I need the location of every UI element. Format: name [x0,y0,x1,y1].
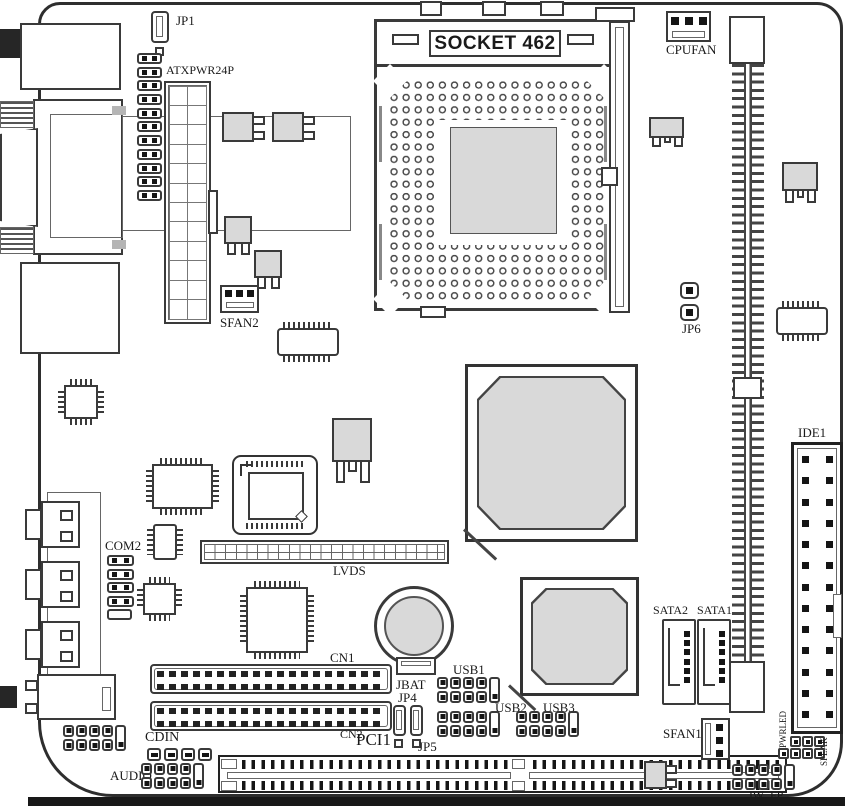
jwfp-label: JW_FP [748,789,783,802]
sfan2-label: SFAN2 [220,316,259,330]
jwfp-header [732,764,795,790]
transistor-leg [664,136,671,143]
com2-label: COM2 [105,539,141,553]
flash-chip [776,307,828,335]
transistor-leg [336,460,345,483]
chip-pins [70,379,92,385]
board-bottom-edge [28,797,845,806]
port-plug-tab [25,569,42,600]
socket-top-tab [420,1,442,16]
jp5-slot [413,710,419,730]
southbridge-die [533,590,626,683]
port-pin [60,570,73,581]
vreg-transistor [254,250,282,278]
small-qfp-chip [64,385,98,419]
socket-top-tab [540,1,564,16]
small-soic-chip [153,524,177,560]
io-port-box [20,262,120,354]
spare-header [63,725,126,751]
dimm-teeth-right [752,64,764,661]
lvds-connector [200,540,449,564]
jp6-pin [686,309,693,316]
chip-pins [176,589,182,609]
cpufan-pin [671,17,679,25]
chip-pins [283,322,333,328]
transistor-leg [241,242,250,255]
port-pin [60,531,73,542]
transistor-leg [360,460,370,483]
mounting-block [0,686,17,708]
vga-screw-post [0,101,34,128]
atxpwr24p-label: ATXPWR24P [166,64,234,77]
chip-pins [149,577,170,583]
sata2-key [668,628,680,686]
sata2-label: SATA2 [653,604,688,617]
port-pin [60,510,73,521]
sata1-label: SATA1 [697,604,732,617]
chip-pins [308,595,314,645]
jp4-pad [394,739,403,748]
transistor-leg [797,189,804,198]
vreg-transistor [222,112,254,142]
ide1-label: IDE1 [798,426,826,440]
port-pin [60,591,73,602]
usb2-header [437,711,500,737]
edge-connector-key [102,687,111,711]
transistor-leg [674,136,683,147]
cpufan-pin [685,17,693,25]
transistor-leg [302,131,315,140]
chip-pins [254,653,300,659]
pci-key [512,759,525,769]
com2-header [107,555,134,607]
dimm-rail [744,64,752,661]
transistor-leg [807,189,816,203]
bios-plcc-inner [248,472,304,520]
pci-key [221,759,237,769]
sfan1-pin [716,724,723,731]
chip-pins [98,391,104,413]
pci-channel [227,772,511,779]
socket-lever-cap [595,7,635,22]
cpufan-pin [699,17,707,25]
chip-pins [160,509,205,515]
port-plug-tab [25,509,42,540]
vreg-transistor [649,117,684,138]
pci-key [512,781,525,791]
atx-latch [208,190,218,234]
socket-label-box: SOCKET 462 [429,30,561,57]
cn1-pins [157,684,385,690]
sata1-pins [719,631,725,683]
chip-pins [240,595,246,645]
bios-corner-mark [240,464,252,476]
pci1-label: PCI1 [356,731,391,750]
jp5-label: JP5 [418,740,437,754]
vga-screw-post [0,227,34,254]
transistor-leg [271,276,280,289]
vreg-transistor [644,761,667,789]
socket-label: SOCKET 462 [434,33,555,55]
cdin-label: CDIN [145,730,179,745]
vga-port-dshell [0,128,38,227]
solder-pad [112,106,126,115]
chip-pins [147,529,153,555]
com2-header-end [107,609,132,620]
socket-top-tab [482,1,506,16]
transistor-leg [252,131,265,140]
port-pin [60,630,73,641]
chip-pins [782,335,822,341]
socket-divider [377,64,615,67]
clock-chip [277,328,339,356]
socket-rail [604,224,607,280]
socket-lever-latch [601,167,618,186]
usb1-label: USB1 [453,663,485,677]
cn2-pins [157,708,385,714]
transistor-leg [652,136,661,147]
ide-pins [802,456,833,718]
lvds-label: LVDS [333,564,366,578]
super-io-chip [246,587,308,653]
ide-key-notch [833,594,842,638]
chip-pins [177,529,183,555]
chip-pins [149,615,170,621]
cpufan-key [672,31,705,38]
sfan1-label: SFAN1 [663,727,702,741]
chip-pins [246,523,306,529]
cpufan-label: CPUFAN [666,43,716,57]
dimm-notch [733,377,762,399]
vreg-transistor [272,112,304,142]
socket-rail [604,106,607,162]
socket-key-pad [567,34,594,45]
sfan2-key [226,302,254,308]
chip-pins [70,419,92,425]
usb3-header [516,711,579,737]
port-plug-tab [25,629,42,660]
transistor-leg [665,765,677,774]
edge-connector-tab [25,703,38,714]
speak-label: SPEAK [820,736,829,766]
motherboard-diagram: JP1 ATXPWR24P SFAN2 SOCKET 462 [0,0,845,806]
pwrled-label: PWRLED [779,711,788,748]
port-pin [60,651,73,662]
sfan2-pin [247,290,254,297]
lvds-grid [204,544,445,560]
front-panel-header-row2 [778,748,825,759]
cn1-pins [157,671,385,677]
chip-pins [58,391,64,413]
dimm-slot-bottom [729,661,765,713]
jp6-label: JP6 [682,322,701,336]
sata2-pins [684,631,690,683]
dimm-slot-top [729,16,765,64]
jp4-label: JP4 [398,691,417,705]
sfan1-pin [716,737,723,744]
vreg-transistor [782,162,818,191]
chip-pins [146,470,152,503]
battery-clip [396,657,436,675]
jp1-label: JP1 [176,14,195,28]
transistor-leg [785,189,794,203]
io-port-box [20,23,121,90]
battery-clip-inner [401,661,431,666]
atx-pin-column [137,53,162,201]
chip-pins [246,461,306,467]
chip-pins [782,301,822,307]
small-qfp-chip [143,583,176,615]
vreg-transistor [224,216,252,244]
chip-pins [254,581,300,587]
edge-connector-tab [25,680,38,691]
jp6-pin [686,287,693,294]
chip-pins [283,356,333,362]
cmos-battery-cell [384,596,444,656]
socket-rail [379,224,382,280]
sfan1-pin [716,750,723,757]
transistor-leg [665,779,677,788]
chip-pins [213,470,219,503]
sfan2-pin [225,290,232,297]
chip-pins [137,589,143,609]
socket-die [450,127,557,234]
socket-bottom-tab [420,306,446,318]
transistor-leg [348,460,357,472]
dimm-teeth-left [732,64,744,661]
socket-rail [379,106,382,162]
sfan2-pin [236,290,243,297]
transistor-leg [302,116,315,125]
sata1-key [703,628,715,686]
pci-key [221,781,237,791]
chip-pins [160,458,205,464]
transistor-leg [227,242,236,255]
usb1-header [437,677,500,703]
socket-key-pad [392,34,419,45]
io-controller-chip [152,464,213,509]
jp1-jumper-slot [156,16,163,37]
northbridge-die [479,378,624,528]
vga-port-inner [50,114,123,238]
atx-power-connector [164,81,211,324]
cdin-connector [147,748,212,761]
solder-pad [112,240,126,249]
vreg-transistor [332,418,372,462]
audio-header [141,763,204,789]
transistor-leg [252,116,265,125]
jp4-slot [396,710,402,730]
sfan1-key [705,723,711,755]
